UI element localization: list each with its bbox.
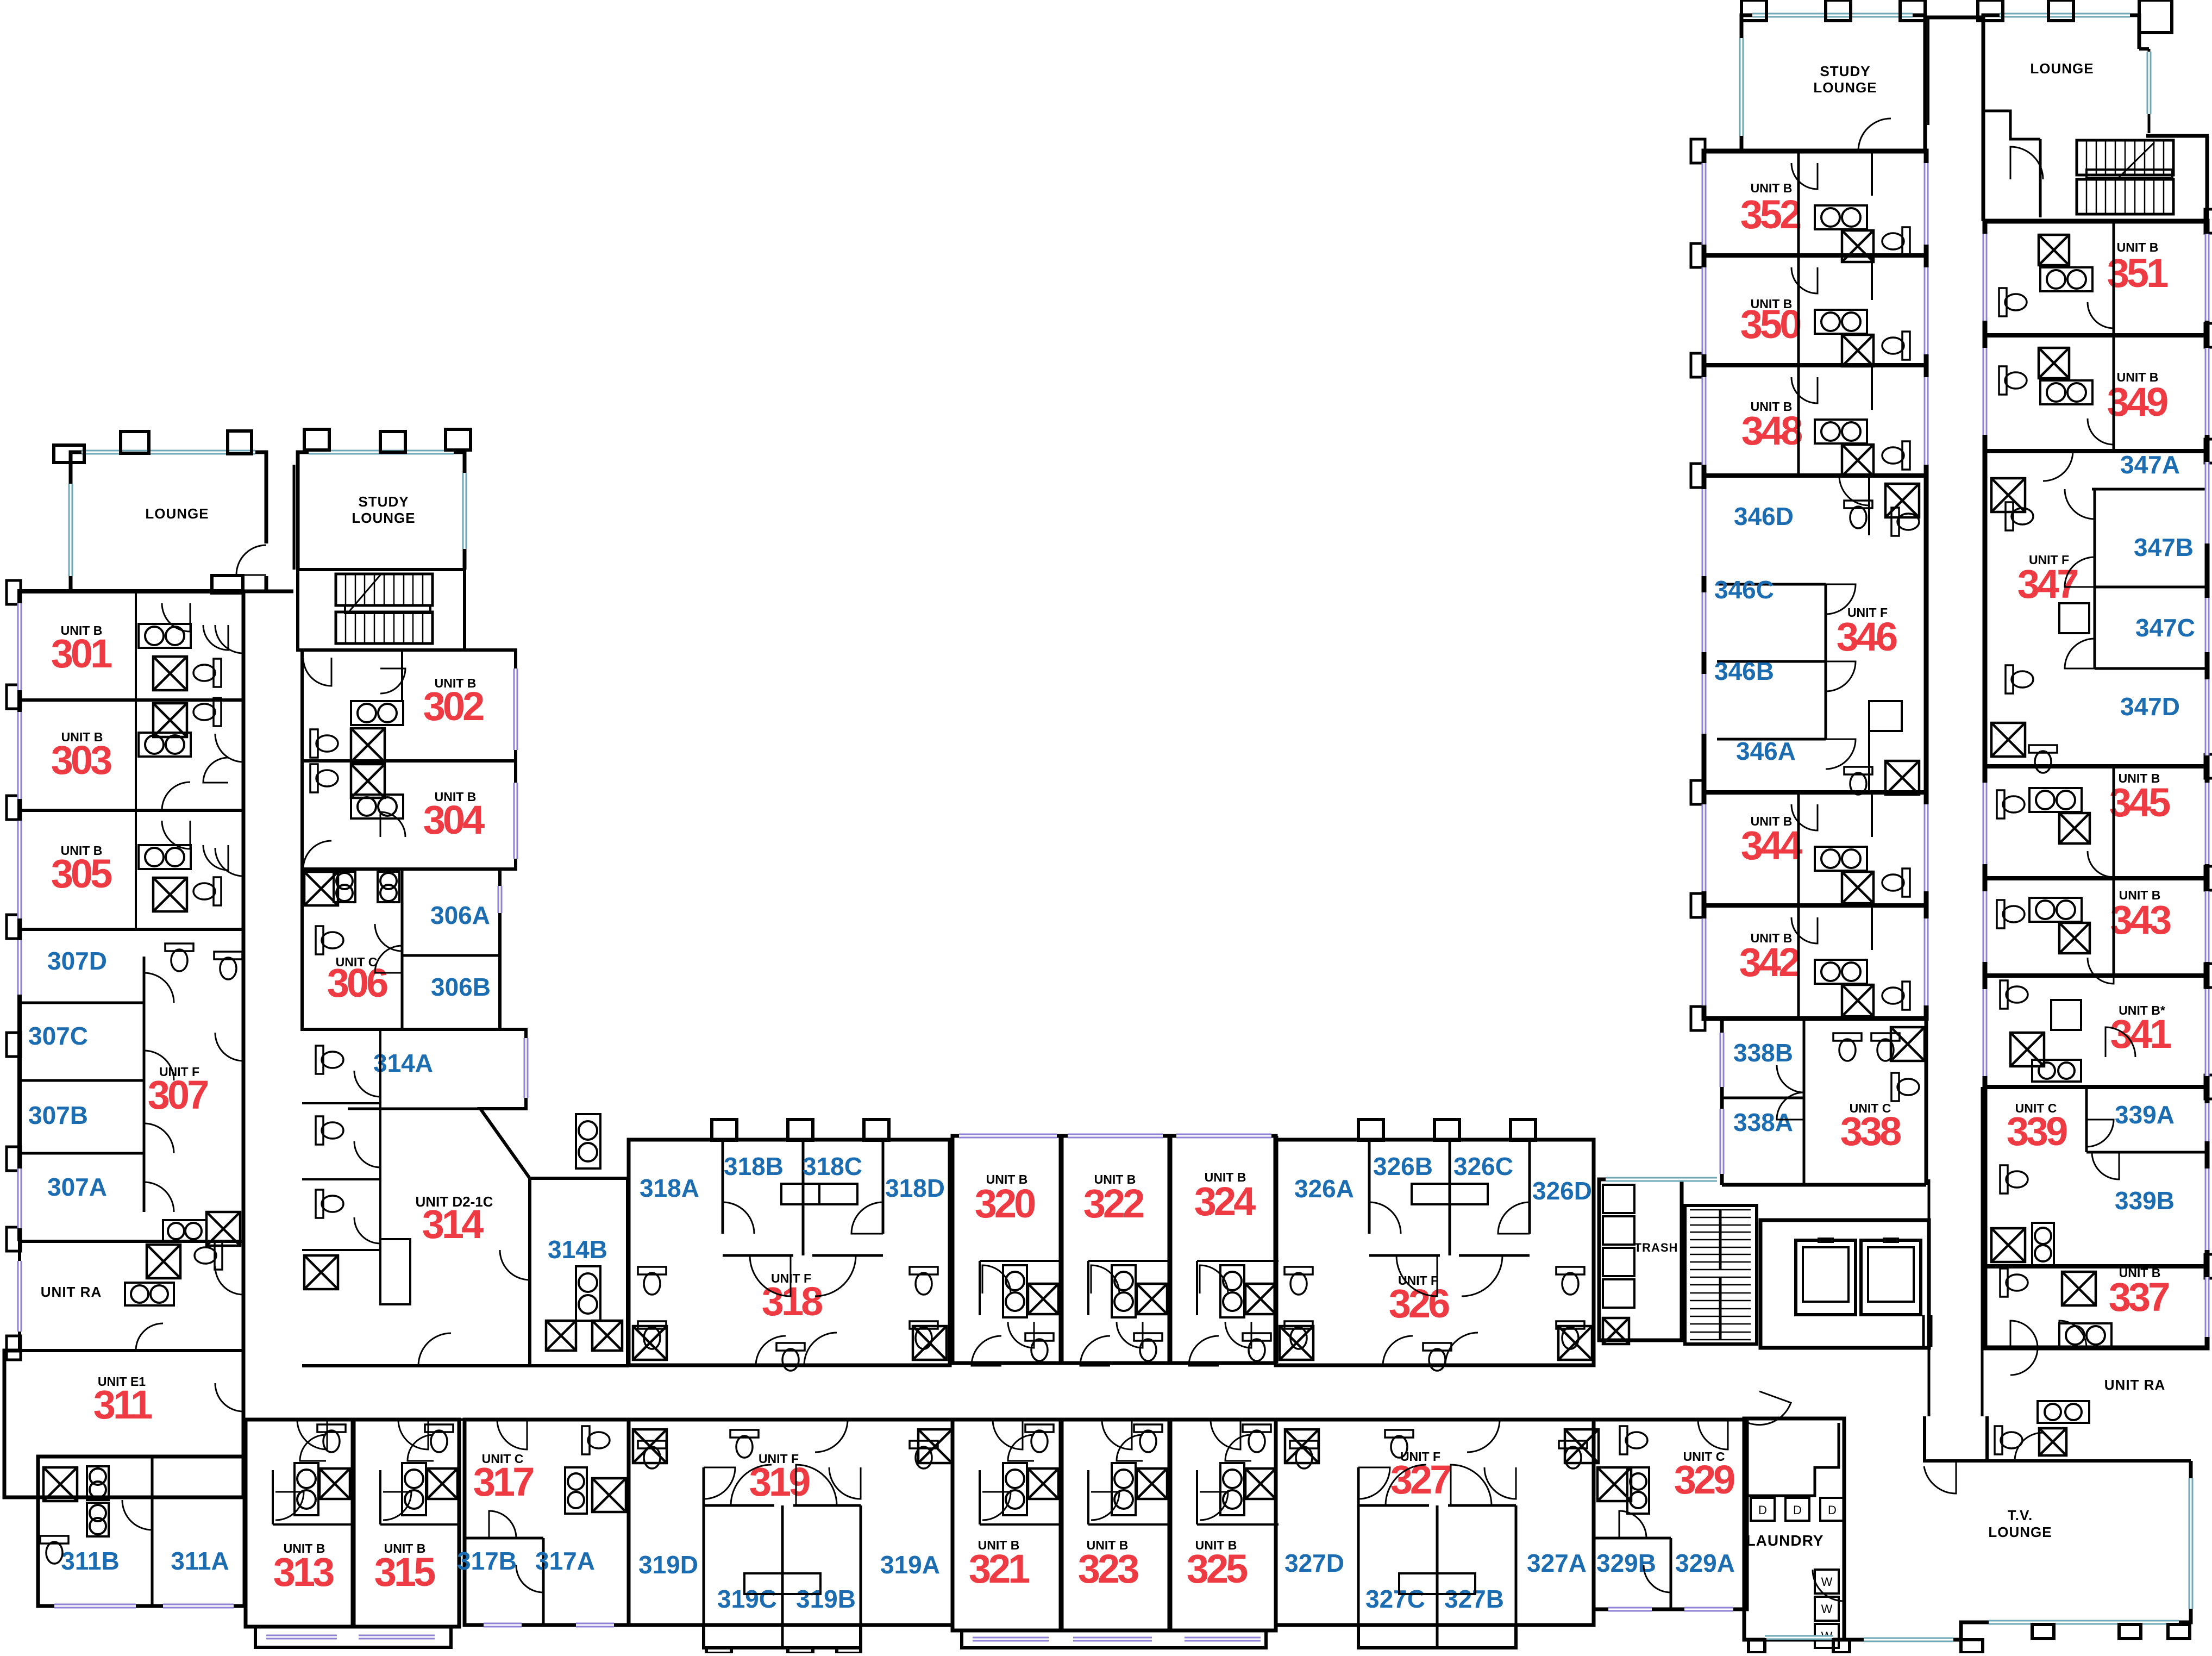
- svg-text:346B: 346B: [1714, 657, 1774, 685]
- svg-text:UNIT RA: UNIT RA: [41, 1284, 102, 1300]
- svg-text:329B: 329B: [1596, 1549, 1656, 1577]
- svg-text:319C: 319C: [717, 1585, 777, 1613]
- svg-text:LOUNGE: LOUNGE: [1813, 79, 1877, 96]
- svg-text:326D: 326D: [1532, 1177, 1592, 1205]
- svg-text:311A: 311A: [171, 1547, 229, 1575]
- svg-text:307A: 307A: [47, 1173, 107, 1201]
- svg-text:302: 302: [423, 684, 484, 729]
- svg-text:319D: 319D: [638, 1551, 698, 1579]
- svg-text:STUDY: STUDY: [358, 493, 409, 510]
- svg-text:339A: 339A: [2115, 1101, 2175, 1129]
- svg-text:347: 347: [2017, 561, 2077, 607]
- svg-text:338B: 338B: [1733, 1039, 1793, 1067]
- svg-text:317: 317: [473, 1459, 533, 1504]
- svg-text:327C: 327C: [1365, 1585, 1425, 1613]
- svg-text:315: 315: [374, 1549, 435, 1595]
- svg-text:326C: 326C: [1453, 1152, 1513, 1180]
- svg-text:319B: 319B: [796, 1585, 856, 1613]
- svg-text:346: 346: [1837, 614, 1897, 659]
- svg-text:LAUNDRY: LAUNDRY: [1746, 1532, 1824, 1549]
- svg-text:343: 343: [2110, 897, 2171, 942]
- svg-text:305: 305: [51, 851, 112, 896]
- svg-text:W: W: [1821, 1575, 1833, 1589]
- svg-text:337: 337: [2109, 1274, 2169, 1320]
- svg-text:STUDY: STUDY: [1820, 63, 1870, 79]
- svg-text:342: 342: [1739, 940, 1800, 985]
- svg-text:323: 323: [1078, 1546, 1138, 1591]
- svg-text:311: 311: [93, 1382, 152, 1427]
- svg-text:339B: 339B: [2115, 1186, 2175, 1215]
- svg-text:314A: 314A: [373, 1049, 433, 1077]
- svg-text:T.V.: T.V.: [2008, 1507, 2033, 1523]
- svg-text:301: 301: [51, 631, 112, 676]
- svg-text:338A: 338A: [1733, 1108, 1793, 1136]
- svg-text:352: 352: [1740, 192, 1801, 237]
- svg-text:314: 314: [422, 1202, 484, 1247]
- svg-text:307C: 307C: [28, 1022, 88, 1050]
- svg-text:319A: 319A: [880, 1551, 940, 1579]
- svg-text:318C: 318C: [803, 1152, 862, 1180]
- svg-text:LOUNGE: LOUNGE: [352, 510, 415, 526]
- svg-text:324: 324: [1194, 1179, 1256, 1224]
- svg-text:347D: 347D: [2120, 692, 2180, 721]
- svg-text:304: 304: [423, 797, 485, 842]
- svg-text:D: D: [1828, 1503, 1837, 1517]
- svg-text:326A: 326A: [1294, 1174, 1354, 1203]
- svg-text:338: 338: [1840, 1109, 1901, 1154]
- svg-text:351: 351: [2107, 251, 2168, 296]
- svg-text:341: 341: [2110, 1011, 2171, 1057]
- svg-text:317A: 317A: [535, 1547, 595, 1575]
- svg-text:348: 348: [1741, 408, 1802, 453]
- svg-text:339: 339: [2007, 1109, 2067, 1154]
- svg-text:307B: 307B: [28, 1101, 88, 1129]
- svg-text:344: 344: [1741, 823, 1802, 868]
- svg-text:346D: 346D: [1734, 502, 1794, 530]
- svg-text:329: 329: [1674, 1457, 1734, 1502]
- svg-text:W: W: [1821, 1602, 1833, 1616]
- svg-text:350: 350: [1740, 302, 1801, 347]
- svg-text:313: 313: [273, 1549, 334, 1595]
- svg-text:322: 322: [1083, 1181, 1144, 1226]
- svg-text:UNIT RA: UNIT RA: [2104, 1377, 2165, 1393]
- svg-text:307: 307: [148, 1072, 208, 1117]
- svg-text:345: 345: [2109, 780, 2170, 825]
- svg-text:306A: 306A: [430, 901, 490, 929]
- svg-text:311B: 311B: [61, 1547, 119, 1575]
- svg-text:327: 327: [1390, 1457, 1450, 1502]
- svg-text:326B: 326B: [1373, 1152, 1433, 1180]
- svg-text:306B: 306B: [431, 973, 491, 1001]
- svg-text:349: 349: [2107, 379, 2167, 424]
- svg-text:LOUNGE: LOUNGE: [145, 505, 209, 522]
- svg-text:318: 318: [762, 1279, 822, 1324]
- svg-text:317B: 317B: [457, 1547, 517, 1575]
- svg-text:LOUNGE: LOUNGE: [2030, 60, 2094, 77]
- svg-text:326: 326: [1389, 1281, 1449, 1326]
- svg-text:306: 306: [327, 960, 387, 1005]
- svg-text:325: 325: [1187, 1546, 1248, 1591]
- svg-text:346C: 346C: [1714, 576, 1774, 604]
- svg-text:318A: 318A: [640, 1174, 699, 1202]
- svg-text:D: D: [1793, 1503, 1802, 1517]
- svg-text:307D: 307D: [47, 947, 107, 975]
- svg-text:346A: 346A: [1736, 737, 1796, 765]
- svg-text:318B: 318B: [724, 1152, 784, 1180]
- svg-text:320: 320: [975, 1181, 1035, 1226]
- svg-text:TRASH: TRASH: [1634, 1241, 1678, 1254]
- svg-text:329A: 329A: [1675, 1549, 1735, 1577]
- svg-text:314B: 314B: [548, 1235, 607, 1264]
- svg-text:327D: 327D: [1284, 1549, 1344, 1577]
- svg-text:LOUNGE: LOUNGE: [1988, 1524, 2052, 1540]
- svg-text:318D: 318D: [885, 1174, 945, 1202]
- svg-text:327A: 327A: [1527, 1549, 1587, 1577]
- svg-text:347A: 347A: [2120, 451, 2180, 479]
- svg-text:347C: 347C: [2135, 614, 2195, 642]
- svg-text:303: 303: [51, 738, 111, 783]
- svg-text:D: D: [1758, 1503, 1767, 1517]
- svg-text:347B: 347B: [2134, 533, 2194, 561]
- svg-text:321: 321: [969, 1546, 1030, 1591]
